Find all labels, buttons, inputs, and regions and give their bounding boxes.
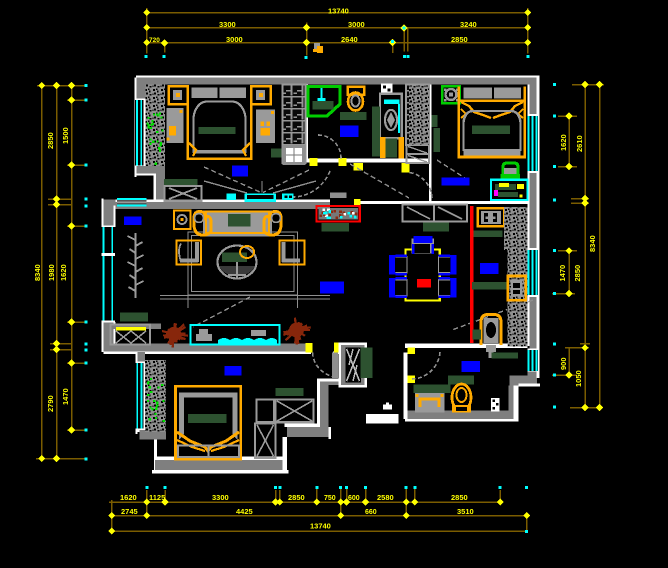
svg-text:2850: 2850 bbox=[451, 35, 468, 44]
svg-text:3000: 3000 bbox=[348, 20, 365, 29]
svg-text:13740: 13740 bbox=[310, 522, 331, 531]
svg-text:2745: 2745 bbox=[121, 507, 138, 516]
svg-text:2850: 2850 bbox=[288, 493, 305, 502]
svg-text:13740: 13740 bbox=[328, 7, 349, 16]
svg-text:720: 720 bbox=[149, 37, 160, 44]
svg-text:8340: 8340 bbox=[33, 264, 42, 281]
svg-text:1620: 1620 bbox=[559, 134, 568, 151]
svg-text:1620: 1620 bbox=[120, 493, 137, 502]
svg-text:3300: 3300 bbox=[212, 493, 229, 502]
svg-text:4425: 4425 bbox=[236, 507, 253, 516]
svg-text:2580: 2580 bbox=[377, 493, 394, 502]
svg-text:2640: 2640 bbox=[341, 35, 358, 44]
svg-text:2850: 2850 bbox=[573, 265, 582, 282]
svg-text:750: 750 bbox=[324, 495, 336, 502]
svg-text:3240: 3240 bbox=[460, 20, 477, 29]
svg-text:2850: 2850 bbox=[46, 132, 55, 149]
svg-text:1050: 1050 bbox=[574, 370, 583, 387]
svg-text:1125: 1125 bbox=[149, 493, 165, 502]
svg-text:2790: 2790 bbox=[46, 395, 55, 412]
svg-text:3300: 3300 bbox=[219, 20, 236, 29]
svg-text:1620: 1620 bbox=[59, 264, 68, 281]
svg-text:8340: 8340 bbox=[588, 235, 597, 252]
svg-text:2850: 2850 bbox=[451, 493, 468, 502]
svg-text:900: 900 bbox=[559, 357, 568, 370]
svg-text:1980: 1980 bbox=[47, 264, 56, 281]
svg-text:2610: 2610 bbox=[575, 135, 584, 152]
svg-text:1470: 1470 bbox=[558, 265, 567, 282]
svg-text:3000: 3000 bbox=[226, 35, 243, 44]
svg-text:660: 660 bbox=[365, 509, 377, 516]
svg-text:1500: 1500 bbox=[61, 127, 70, 144]
svg-text:3510: 3510 bbox=[457, 507, 474, 516]
svg-text:1470: 1470 bbox=[61, 388, 70, 405]
svg-text:600: 600 bbox=[348, 495, 360, 502]
